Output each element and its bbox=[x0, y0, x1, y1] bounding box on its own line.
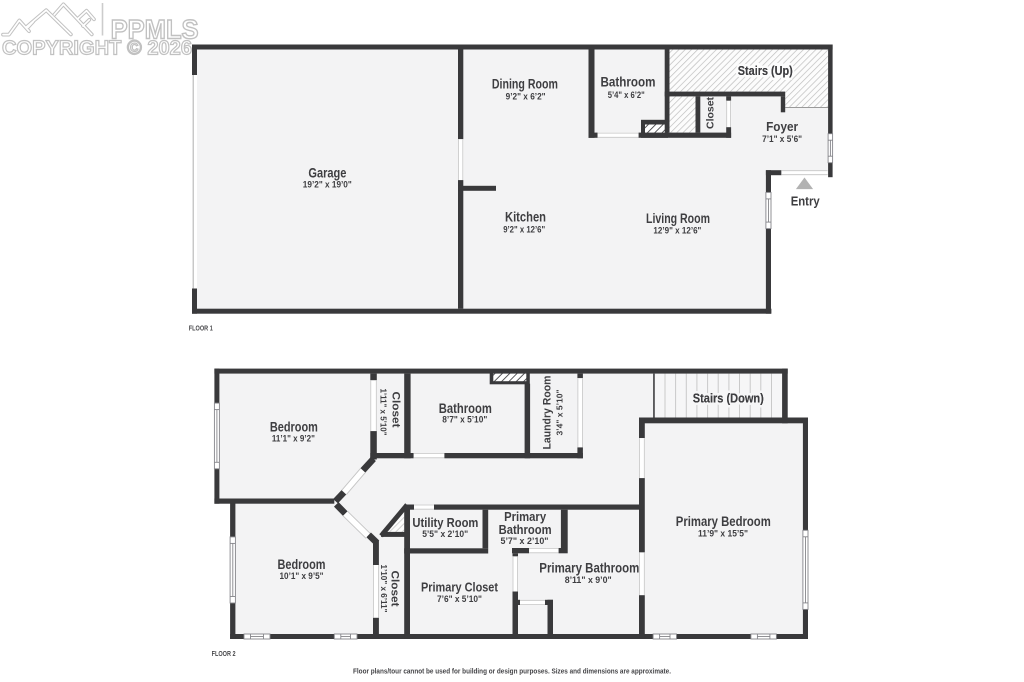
svg-text:Closet: Closet bbox=[389, 392, 401, 428]
svg-text:5’4" x 6’2": 5’4" x 6’2" bbox=[608, 90, 645, 101]
svg-text:8’11" x 9’0": 8’11" x 9’0" bbox=[565, 575, 612, 586]
svg-text:1’10" x 6’11": 1’10" x 6’11" bbox=[379, 565, 389, 613]
svg-text:Garage: Garage bbox=[308, 166, 346, 181]
svg-text:Closet: Closet bbox=[389, 571, 401, 607]
svg-text:FLOOR 1: FLOOR 1 bbox=[189, 324, 213, 333]
svg-text:FLOOR 2: FLOOR 2 bbox=[212, 649, 236, 658]
svg-text:3’4" x 5’10": 3’4" x 5’10" bbox=[555, 390, 565, 436]
svg-text:Primary Closet: Primary Closet bbox=[421, 580, 499, 595]
svg-text:Kitchen: Kitchen bbox=[505, 210, 546, 225]
svg-text:9’2" x 12’6": 9’2" x 12’6" bbox=[503, 224, 545, 235]
svg-text:11’1" x 9’2": 11’1" x 9’2" bbox=[272, 434, 315, 445]
svg-text:7’6" x 5’10": 7’6" x 5’10" bbox=[437, 594, 482, 605]
svg-text:Stairs (Down): Stairs (Down) bbox=[693, 390, 764, 405]
svg-text:1’11" x 5’10": 1’11" x 5’10" bbox=[379, 389, 389, 436]
svg-text:Closet: Closet bbox=[706, 96, 717, 129]
svg-text:Bathroom: Bathroom bbox=[601, 75, 656, 90]
svg-text:Foyer: Foyer bbox=[766, 119, 798, 134]
svg-text:8’7" x 5’10": 8’7" x 5’10" bbox=[442, 415, 487, 426]
svg-text:Laundry Room: Laundry Room bbox=[542, 375, 554, 449]
svg-text:10’1" x 9’5": 10’1" x 9’5" bbox=[280, 571, 324, 582]
svg-text:Stairs (Up): Stairs (Up) bbox=[738, 63, 793, 78]
svg-text:5’7" x 2’10": 5’7" x 2’10" bbox=[501, 536, 549, 547]
svg-text:19’2" x 19’0": 19’2" x 19’0" bbox=[303, 179, 352, 190]
svg-text:COPYRIGHT © 2026: COPYRIGHT © 2026 bbox=[2, 38, 192, 60]
svg-text:7’1" x 5’6": 7’1" x 5’6" bbox=[762, 134, 802, 145]
svg-text:Bathroom: Bathroom bbox=[499, 522, 552, 537]
svg-text:Primary Bathroom: Primary Bathroom bbox=[539, 561, 639, 576]
svg-text:Floor plans/tour cannot be use: Floor plans/tour cannot be used for buil… bbox=[353, 668, 671, 675]
svg-text:11’9" x 15’5": 11’9" x 15’5" bbox=[698, 528, 748, 539]
svg-text:5’5" x 2’10": 5’5" x 2’10" bbox=[422, 529, 468, 540]
svg-text:Bedroom: Bedroom bbox=[270, 419, 318, 434]
svg-text:Living Room: Living Room bbox=[646, 211, 710, 226]
svg-text:Primary Bedroom: Primary Bedroom bbox=[676, 514, 771, 529]
svg-text:12’9" x 12’6": 12’9" x 12’6" bbox=[653, 225, 701, 236]
svg-text:Dining Room: Dining Room bbox=[492, 77, 558, 92]
svg-text:9’2" x 6’2": 9’2" x 6’2" bbox=[506, 91, 546, 102]
svg-text:Bedroom: Bedroom bbox=[278, 557, 326, 572]
svg-text:Entry: Entry bbox=[791, 195, 820, 209]
